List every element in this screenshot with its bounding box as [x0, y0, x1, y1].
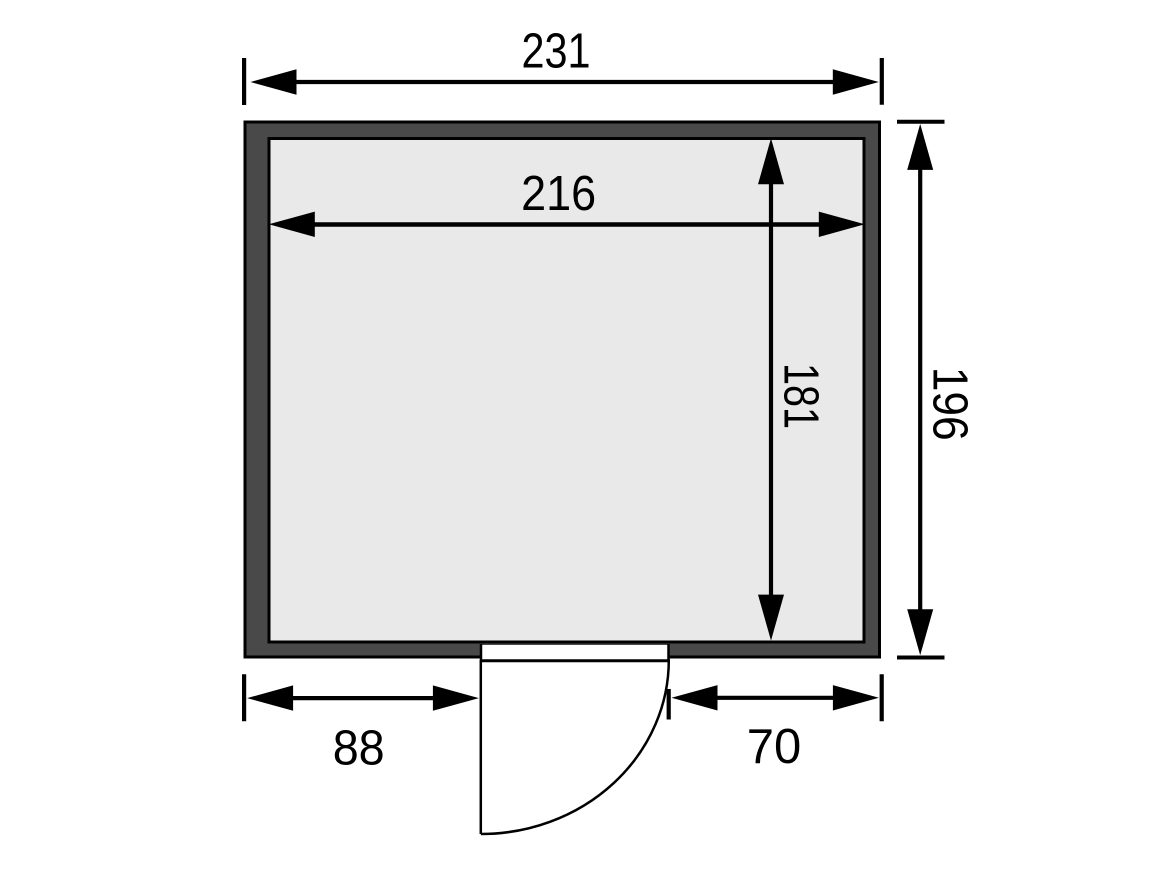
svg-text:231: 231 [522, 25, 591, 79]
svg-text:196: 196 [923, 367, 977, 441]
svg-text:181: 181 [774, 363, 828, 429]
svg-text:88: 88 [333, 722, 385, 776]
svg-text:216: 216 [521, 167, 596, 221]
svg-text:70: 70 [747, 720, 802, 774]
